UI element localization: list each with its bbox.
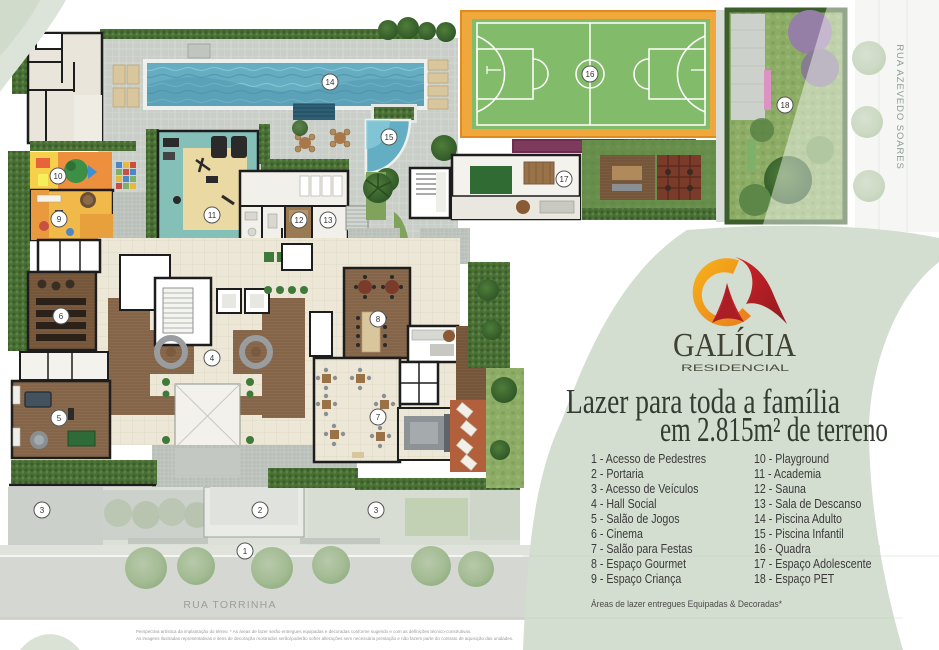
svg-text:14 - Piscina Adulto: 14 - Piscina Adulto (754, 512, 842, 526)
svg-text:4 - Hall Social: 4 - Hall Social (591, 497, 657, 511)
svg-text:RUA TORRINHA: RUA TORRINHA (183, 599, 276, 611)
svg-text:16 - Quadra: 16 - Quadra (754, 542, 811, 556)
svg-text:RESIDENCIAL: RESIDENCIAL (681, 363, 789, 374)
svg-text:16: 16 (586, 70, 595, 79)
svg-text:18: 18 (781, 101, 790, 110)
svg-text:8 - Espaço Gourmet: 8 - Espaço Gourmet (591, 557, 687, 571)
svg-text:3 - Acesso de Veículos: 3 - Acesso de Veículos (591, 482, 699, 496)
svg-text:14: 14 (326, 78, 335, 87)
svg-text:6: 6 (59, 312, 64, 321)
svg-text:15 - Piscina Infantil: 15 - Piscina Infantil (754, 527, 844, 541)
svg-text:13 - Sala de Descanso: 13 - Sala de Descanso (754, 497, 861, 511)
svg-text:9 - Espaço Criança: 9 - Espaço Criança (591, 572, 682, 586)
svg-text:Perspectiva artística da impla: Perspectiva artística da implantação do … (136, 629, 471, 634)
svg-text:2: 2 (258, 506, 263, 515)
svg-text:1 - Acesso de Pedestres: 1 - Acesso de Pedestres (591, 452, 706, 466)
svg-text:Áreas de lazer entregues Equip: Áreas de lazer entregues Equipadas & Dec… (591, 599, 782, 609)
svg-text:em 2.815m² de terreno: em 2.815m² de terreno (660, 410, 888, 449)
svg-text:15: 15 (385, 133, 394, 142)
svg-text:11 - Academia: 11 - Academia (754, 467, 822, 481)
svg-text:1: 1 (243, 547, 248, 556)
svg-text:17: 17 (560, 175, 569, 184)
svg-text:10 - Playground: 10 - Playground (754, 452, 829, 466)
svg-text:2 - Portaria: 2 - Portaria (591, 467, 644, 481)
svg-text:RUA AZEVEDO SOARES: RUA AZEVEDO SOARES (894, 44, 905, 169)
svg-text:10: 10 (54, 172, 63, 181)
svg-text:9: 9 (57, 215, 62, 224)
svg-text:5: 5 (57, 414, 62, 423)
svg-text:17 - Espaço Adolescente: 17 - Espaço Adolescente (754, 557, 871, 571)
svg-text:4: 4 (210, 354, 215, 363)
svg-text:7: 7 (376, 413, 381, 422)
svg-text:3: 3 (40, 506, 45, 515)
svg-text:5 - Salão de Jogos: 5 - Salão de Jogos (591, 512, 680, 526)
svg-text:GALÍCIA: GALÍCIA (673, 327, 796, 364)
svg-text:3: 3 (374, 506, 379, 515)
svg-text:12: 12 (295, 216, 304, 225)
svg-text:13: 13 (324, 216, 333, 225)
svg-text:12 - Sauna: 12 - Sauna (754, 482, 806, 496)
svg-text:6 - Cinema: 6 - Cinema (591, 527, 643, 541)
svg-text:As imagens ilustradas represen: As imagens ilustradas representativas e … (136, 636, 513, 641)
svg-text:7 - Salão para Festas: 7 - Salão para Festas (591, 542, 693, 556)
svg-text:18 - Espaço PET: 18 - Espaço PET (754, 572, 834, 586)
svg-text:11: 11 (208, 211, 217, 220)
svg-text:8: 8 (376, 315, 381, 324)
